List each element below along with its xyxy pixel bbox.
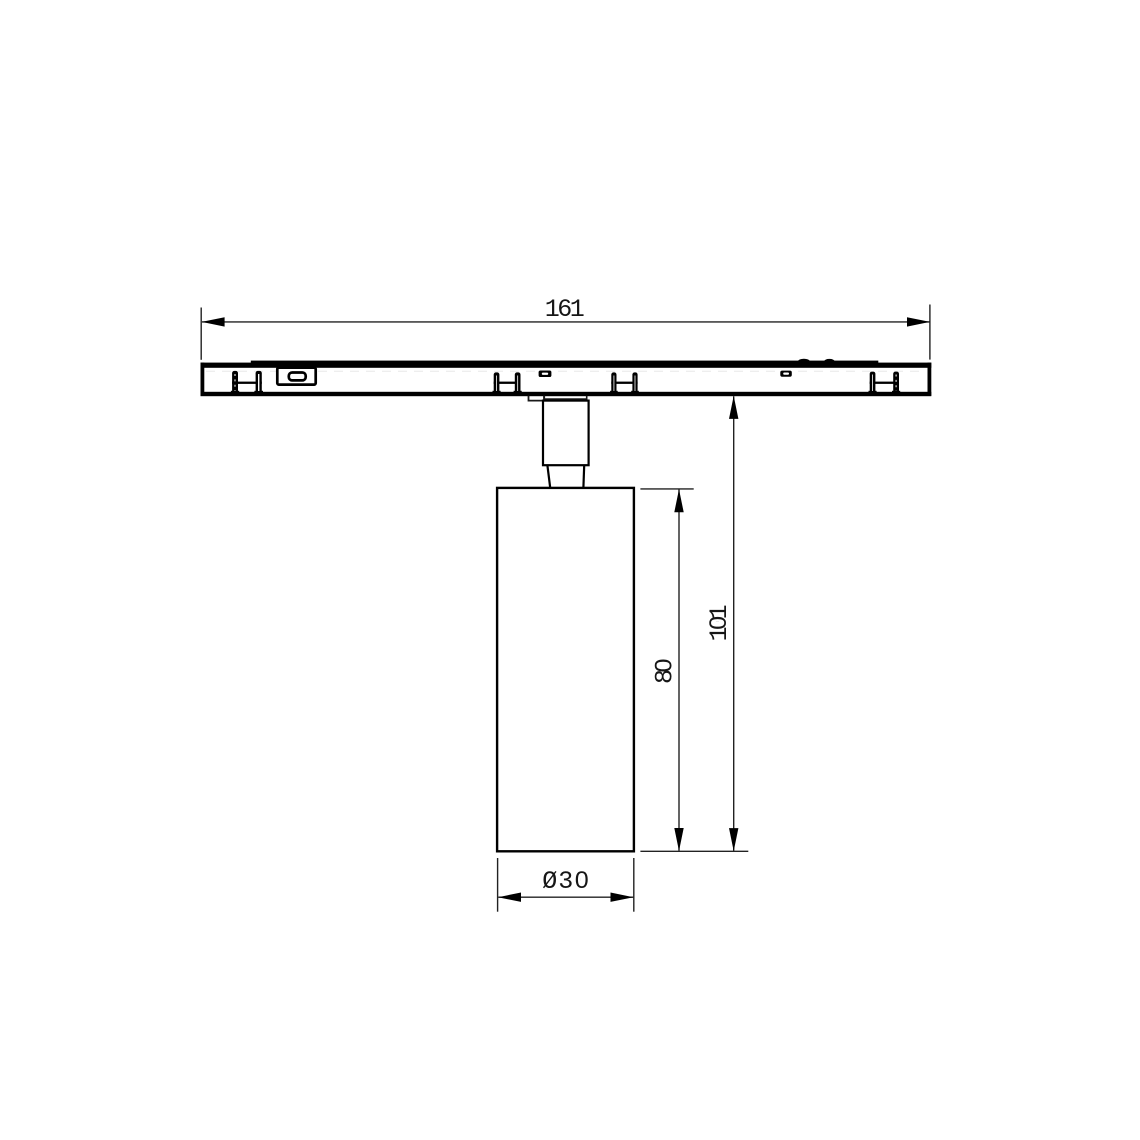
svg-text:80: 80 bbox=[650, 658, 679, 684]
svg-text:161: 161 bbox=[545, 295, 585, 324]
